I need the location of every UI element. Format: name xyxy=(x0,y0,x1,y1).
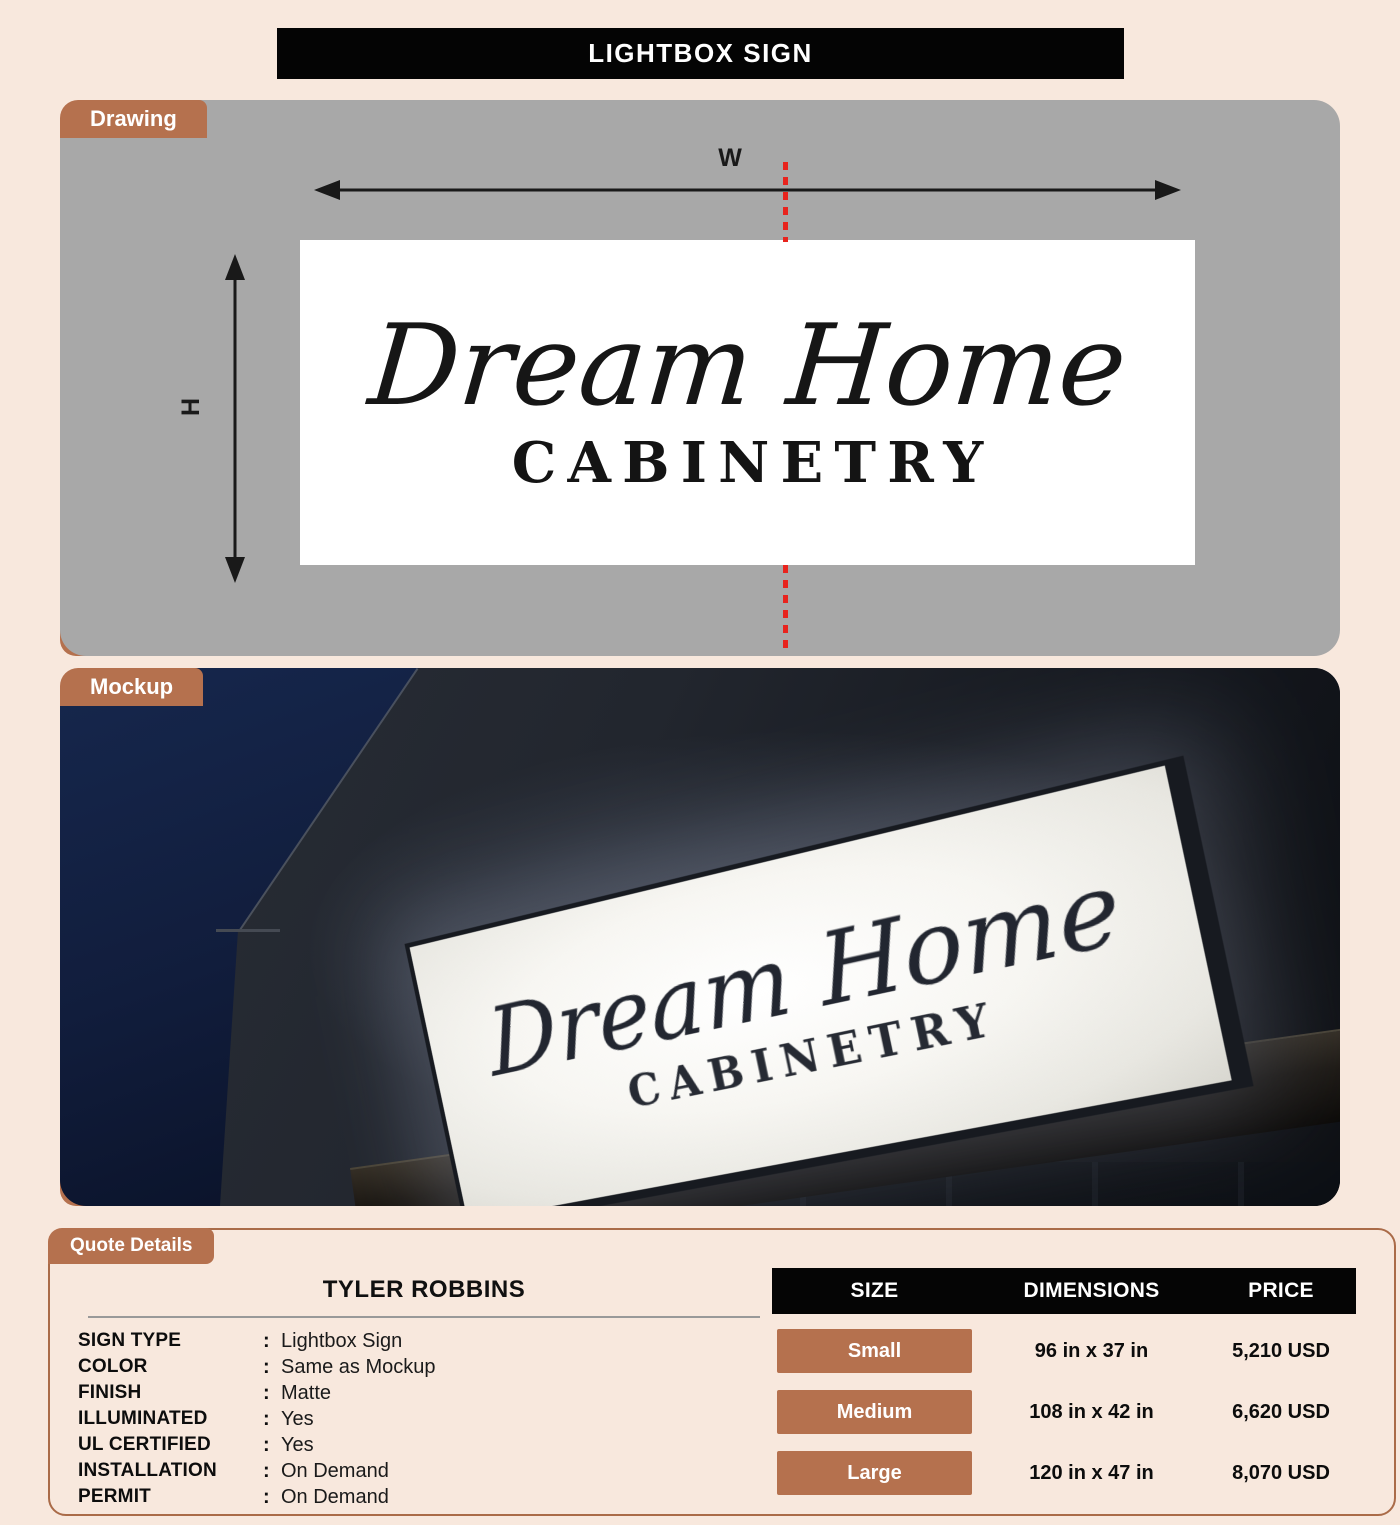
field-value: Same as Mockup xyxy=(281,1354,768,1380)
drawing-section: W Dream Home CABINETRY H Drawing xyxy=(60,100,1340,656)
height-dimension-label: H xyxy=(177,377,207,437)
mockup-photo: Dream Home CABINETRY xyxy=(60,668,1340,1206)
field-separator: : xyxy=(263,1406,281,1432)
mockup-tab: Mockup xyxy=(60,668,203,706)
size-option-small[interactable]: Small xyxy=(777,1329,972,1373)
width-arrow xyxy=(310,176,1185,204)
mockup-section: Dream Home CABINETRY Mockup xyxy=(60,668,1340,1206)
width-dimension-label: W xyxy=(690,144,770,173)
quote-fields: SIGN TYPE : Lightbox Sign COLOR : Same a… xyxy=(78,1328,768,1510)
dimensions-value: 120 in x 47 in xyxy=(977,1462,1206,1485)
field-separator: : xyxy=(263,1380,281,1406)
field-row-color: COLOR : Same as Mockup xyxy=(78,1354,768,1380)
sign-caps-text: CABINETRY xyxy=(501,430,995,496)
table-row-large: Large 120 in x 47 in 8,070 USD xyxy=(772,1450,1356,1496)
quote-details-section: Quote Details TYLER ROBBINS SIGN TYPE : … xyxy=(48,1228,1396,1516)
table-header-price: PRICE xyxy=(1206,1279,1356,1303)
field-row-illuminated: ILLUMINATED : Yes xyxy=(78,1406,768,1432)
field-label: UL CERTIFIED xyxy=(78,1432,263,1458)
field-label: PERMIT xyxy=(78,1484,263,1510)
dimensions-value: 108 in x 42 in xyxy=(977,1401,1206,1424)
field-separator: : xyxy=(263,1484,281,1510)
quote-details-tab: Quote Details xyxy=(48,1228,214,1264)
table-header-row: SIZE DIMENSIONS PRICE xyxy=(772,1268,1356,1314)
field-separator: : xyxy=(263,1354,281,1380)
field-value: Matte xyxy=(281,1380,768,1406)
field-row-ul-certified: UL CERTIFIED : Yes xyxy=(78,1432,768,1458)
field-row-permit: PERMIT : On Demand xyxy=(78,1484,768,1510)
price-value: 5,210 USD xyxy=(1206,1340,1356,1363)
field-value: Yes xyxy=(281,1406,768,1432)
sign-script-text: Dream Home xyxy=(365,310,1131,422)
size-price-table: SIZE DIMENSIONS PRICE Small 96 in x 37 i… xyxy=(772,1268,1356,1511)
drawing-canvas: W Dream Home CABINETRY H xyxy=(60,100,1340,656)
field-row-sign-type: SIGN TYPE : Lightbox Sign xyxy=(78,1328,768,1354)
field-value: Lightbox Sign xyxy=(281,1328,768,1354)
page-title: LIGHTBOX SIGN xyxy=(277,28,1124,79)
center-dashed-line-top xyxy=(783,162,788,242)
table-row-small: Small 96 in x 37 in 5,210 USD xyxy=(772,1328,1356,1374)
table-header-dimensions: DIMENSIONS xyxy=(977,1279,1206,1303)
field-row-finish: FINISH : Matte xyxy=(78,1380,768,1406)
dimensions-value: 96 in x 37 in xyxy=(977,1340,1206,1363)
field-label: INSTALLATION xyxy=(78,1458,263,1484)
field-separator: : xyxy=(263,1432,281,1458)
price-value: 6,620 USD xyxy=(1206,1401,1356,1424)
parapet-ledge-highlight xyxy=(216,929,280,932)
customer-divider xyxy=(88,1316,760,1318)
field-separator: : xyxy=(263,1458,281,1484)
size-option-medium[interactable]: Medium xyxy=(777,1390,972,1434)
field-row-installation: INSTALLATION : On Demand xyxy=(78,1458,768,1484)
field-label: COLOR xyxy=(78,1354,263,1380)
price-value: 8,070 USD xyxy=(1206,1462,1356,1485)
field-value: On Demand xyxy=(281,1484,768,1510)
height-arrow xyxy=(221,250,249,587)
table-body: Small 96 in x 37 in 5,210 USD Medium 108… xyxy=(772,1328,1356,1496)
field-separator: : xyxy=(263,1328,281,1354)
field-value: On Demand xyxy=(281,1458,768,1484)
size-option-large[interactable]: Large xyxy=(777,1451,972,1495)
field-label: FINISH xyxy=(78,1380,263,1406)
drawing-sign-panel: Dream Home CABINETRY xyxy=(300,240,1195,565)
field-label: SIGN TYPE xyxy=(78,1328,263,1354)
center-dashed-line-bottom xyxy=(783,565,788,649)
drawing-tab: Drawing xyxy=(60,100,207,138)
table-row-medium: Medium 108 in x 42 in 6,620 USD xyxy=(772,1389,1356,1435)
customer-name: TYLER ROBBINS xyxy=(88,1276,760,1304)
table-header-size: SIZE xyxy=(772,1279,977,1303)
field-label: ILLUMINATED xyxy=(78,1406,263,1432)
field-value: Yes xyxy=(281,1432,768,1458)
